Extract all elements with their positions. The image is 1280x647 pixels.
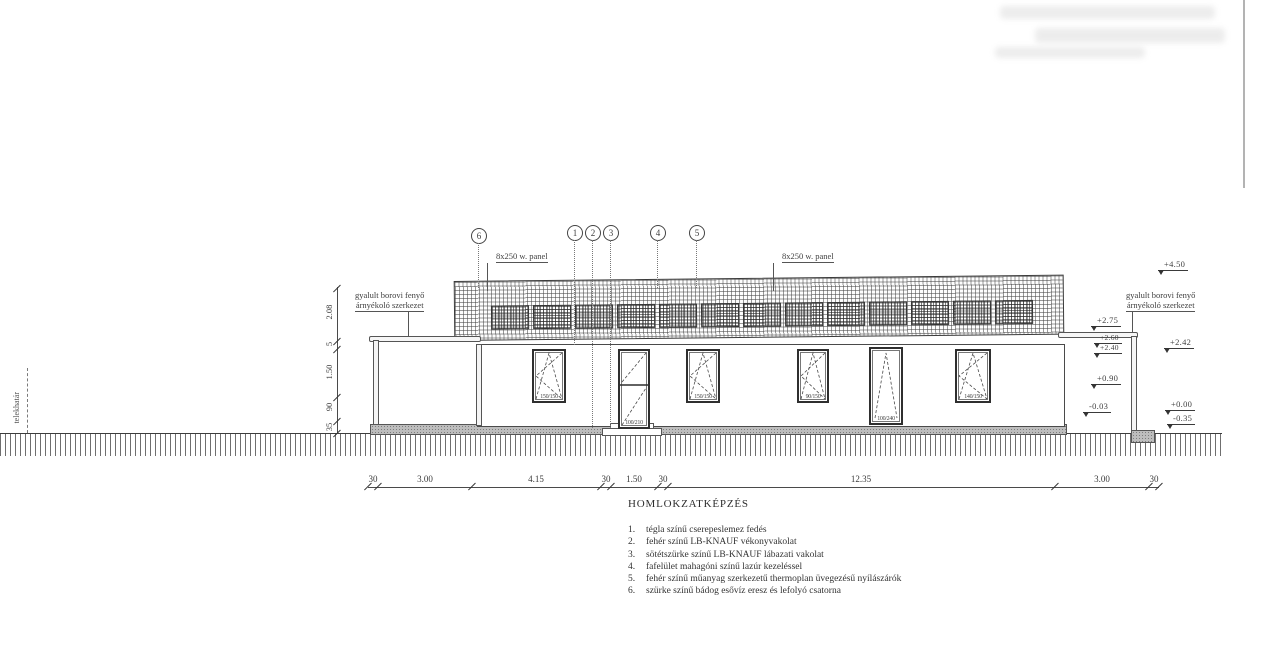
elevation-mark: +2.75 xyxy=(1091,315,1121,327)
roof-panel xyxy=(827,302,865,326)
window: 100/240 xyxy=(869,347,903,425)
panel-note: 8x250 w. panel xyxy=(782,251,834,263)
right-step xyxy=(1131,430,1155,443)
door-stoop-lower xyxy=(602,428,662,436)
window-size-label: 140/150 xyxy=(957,394,989,400)
panel-note: 8x250 w. panel xyxy=(496,251,548,263)
elevation-mark: +2.40 xyxy=(1094,343,1122,354)
dimension-value: 30 xyxy=(659,474,668,484)
roof-panel xyxy=(743,303,781,327)
dimension-value: 3.00 xyxy=(1094,474,1110,484)
elevation-mark: +4.50 xyxy=(1158,259,1188,271)
callout-leader-line xyxy=(592,240,593,428)
callout-leader-line xyxy=(574,240,575,345)
dimension-value: 90 xyxy=(324,403,334,412)
legend-item: 4.fafelület mahagóni színű lazúr kezelés… xyxy=(628,561,901,573)
legend-item: 3.sötétszürke színű LB-KNAUF lábazati va… xyxy=(628,549,901,561)
window: 90/150 xyxy=(797,349,829,403)
roof-panel xyxy=(911,301,949,325)
roof-panel xyxy=(785,302,823,326)
dimension-value: 4.15 xyxy=(528,474,544,484)
dimension-value: 3.00 xyxy=(417,474,433,484)
window: 140/150 xyxy=(955,349,991,403)
shade-structure-note: gyalult borovi fenyőárnyékoló szerkezet xyxy=(355,291,424,312)
dimension-line-left xyxy=(337,287,338,433)
callout-circle: 6 xyxy=(471,228,487,244)
legend-block: HOMLOKZATKÉPZÉS 1.tégla színű cserepesle… xyxy=(628,498,901,598)
elevation-mark: +0.00 xyxy=(1165,399,1195,411)
elevation-drawing: 150/150100/210150/15090/150100/240140/15… xyxy=(0,0,1280,647)
property-boundary-label: telekhatár xyxy=(12,392,21,424)
pergola-post xyxy=(373,340,379,425)
property-boundary-line xyxy=(27,368,28,433)
scan-artifact-smudge xyxy=(1035,28,1225,43)
roof-panel xyxy=(491,305,529,329)
pergola-post xyxy=(1131,336,1137,431)
dimension-value: 30 xyxy=(1150,474,1159,484)
roof-panel xyxy=(533,305,571,329)
legend-item: 2.fehér színű LB-KNAUF vékonyvakolat xyxy=(628,536,901,548)
elevation-mark: -0.03 xyxy=(1083,401,1111,413)
terrain-hatch xyxy=(0,433,1222,456)
callout-leader-line xyxy=(610,240,611,428)
roof-band xyxy=(454,275,1065,341)
panel-note-leader xyxy=(773,263,774,291)
roof-panel xyxy=(869,301,907,325)
shade-note-leader xyxy=(1132,312,1133,332)
callout-circle: 3 xyxy=(603,225,619,241)
elevation-mark: +0.90 xyxy=(1091,373,1121,385)
window-size-label: 100/240 xyxy=(871,416,901,422)
roof-panel xyxy=(701,303,739,327)
dimension-value: 1.50 xyxy=(324,365,334,380)
window: 150/150 xyxy=(686,349,720,403)
window: 150/150 xyxy=(532,349,566,403)
pergola-beam xyxy=(369,336,481,342)
roof-panel xyxy=(575,304,613,328)
callout-circle: 2 xyxy=(585,225,601,241)
scan-artifact-smudge xyxy=(1000,6,1215,19)
scan-artifact-line xyxy=(1243,0,1245,188)
panel-note-leader xyxy=(487,263,488,291)
entrance-door: 100/210 xyxy=(618,349,650,429)
callout-circle: 4 xyxy=(650,225,666,241)
roof-panel xyxy=(659,303,697,327)
dimension-value: 30 xyxy=(369,474,378,484)
window-size-label: 150/150 xyxy=(688,394,718,400)
dimension-value: 2.08 xyxy=(324,305,334,320)
dimension-value: 12.35 xyxy=(851,474,871,484)
dimension-value: 1.50 xyxy=(626,474,642,484)
dimension-value: 5 xyxy=(324,342,334,346)
shade-structure-note: gyalult borovi fenyőárnyékoló szerkezet xyxy=(1126,291,1195,312)
shade-note-leader xyxy=(408,312,409,336)
elevation-mark: -0.35 xyxy=(1167,413,1195,425)
scan-artifact-smudge xyxy=(995,47,1145,58)
window-size-label: 90/150 xyxy=(799,394,827,400)
window-size-label: 100/210 xyxy=(620,420,648,426)
window-size-label: 150/150 xyxy=(534,394,564,400)
legend-item: 6.szürke színű bádog esővíz eresz és lef… xyxy=(628,585,901,597)
dimension-line-bottom xyxy=(368,487,1159,488)
pergola-post xyxy=(476,344,482,426)
legend-item: 1.tégla színű cserepeslemez fedés xyxy=(628,524,901,536)
elevation-mark: +2.42 xyxy=(1164,337,1194,349)
roof-panel xyxy=(953,300,991,324)
legend-item: 5.fehér színű műanyag szerkezetű thermop… xyxy=(628,573,901,585)
legend-list: 1.tégla színű cserepeslemez fedés2.fehér… xyxy=(628,524,901,598)
roof-panel xyxy=(995,300,1033,324)
dimension-value: 35 xyxy=(324,423,334,432)
callout-leader-line xyxy=(696,240,697,288)
callout-leader-line xyxy=(478,243,479,288)
callout-circle: 1 xyxy=(567,225,583,241)
dimension-value: 30 xyxy=(602,474,611,484)
callout-circle: 5 xyxy=(689,225,705,241)
roof-panel xyxy=(617,304,655,328)
callout-leader-line xyxy=(657,240,658,288)
drawing-title: HOMLOKZATKÉPZÉS xyxy=(628,498,901,510)
